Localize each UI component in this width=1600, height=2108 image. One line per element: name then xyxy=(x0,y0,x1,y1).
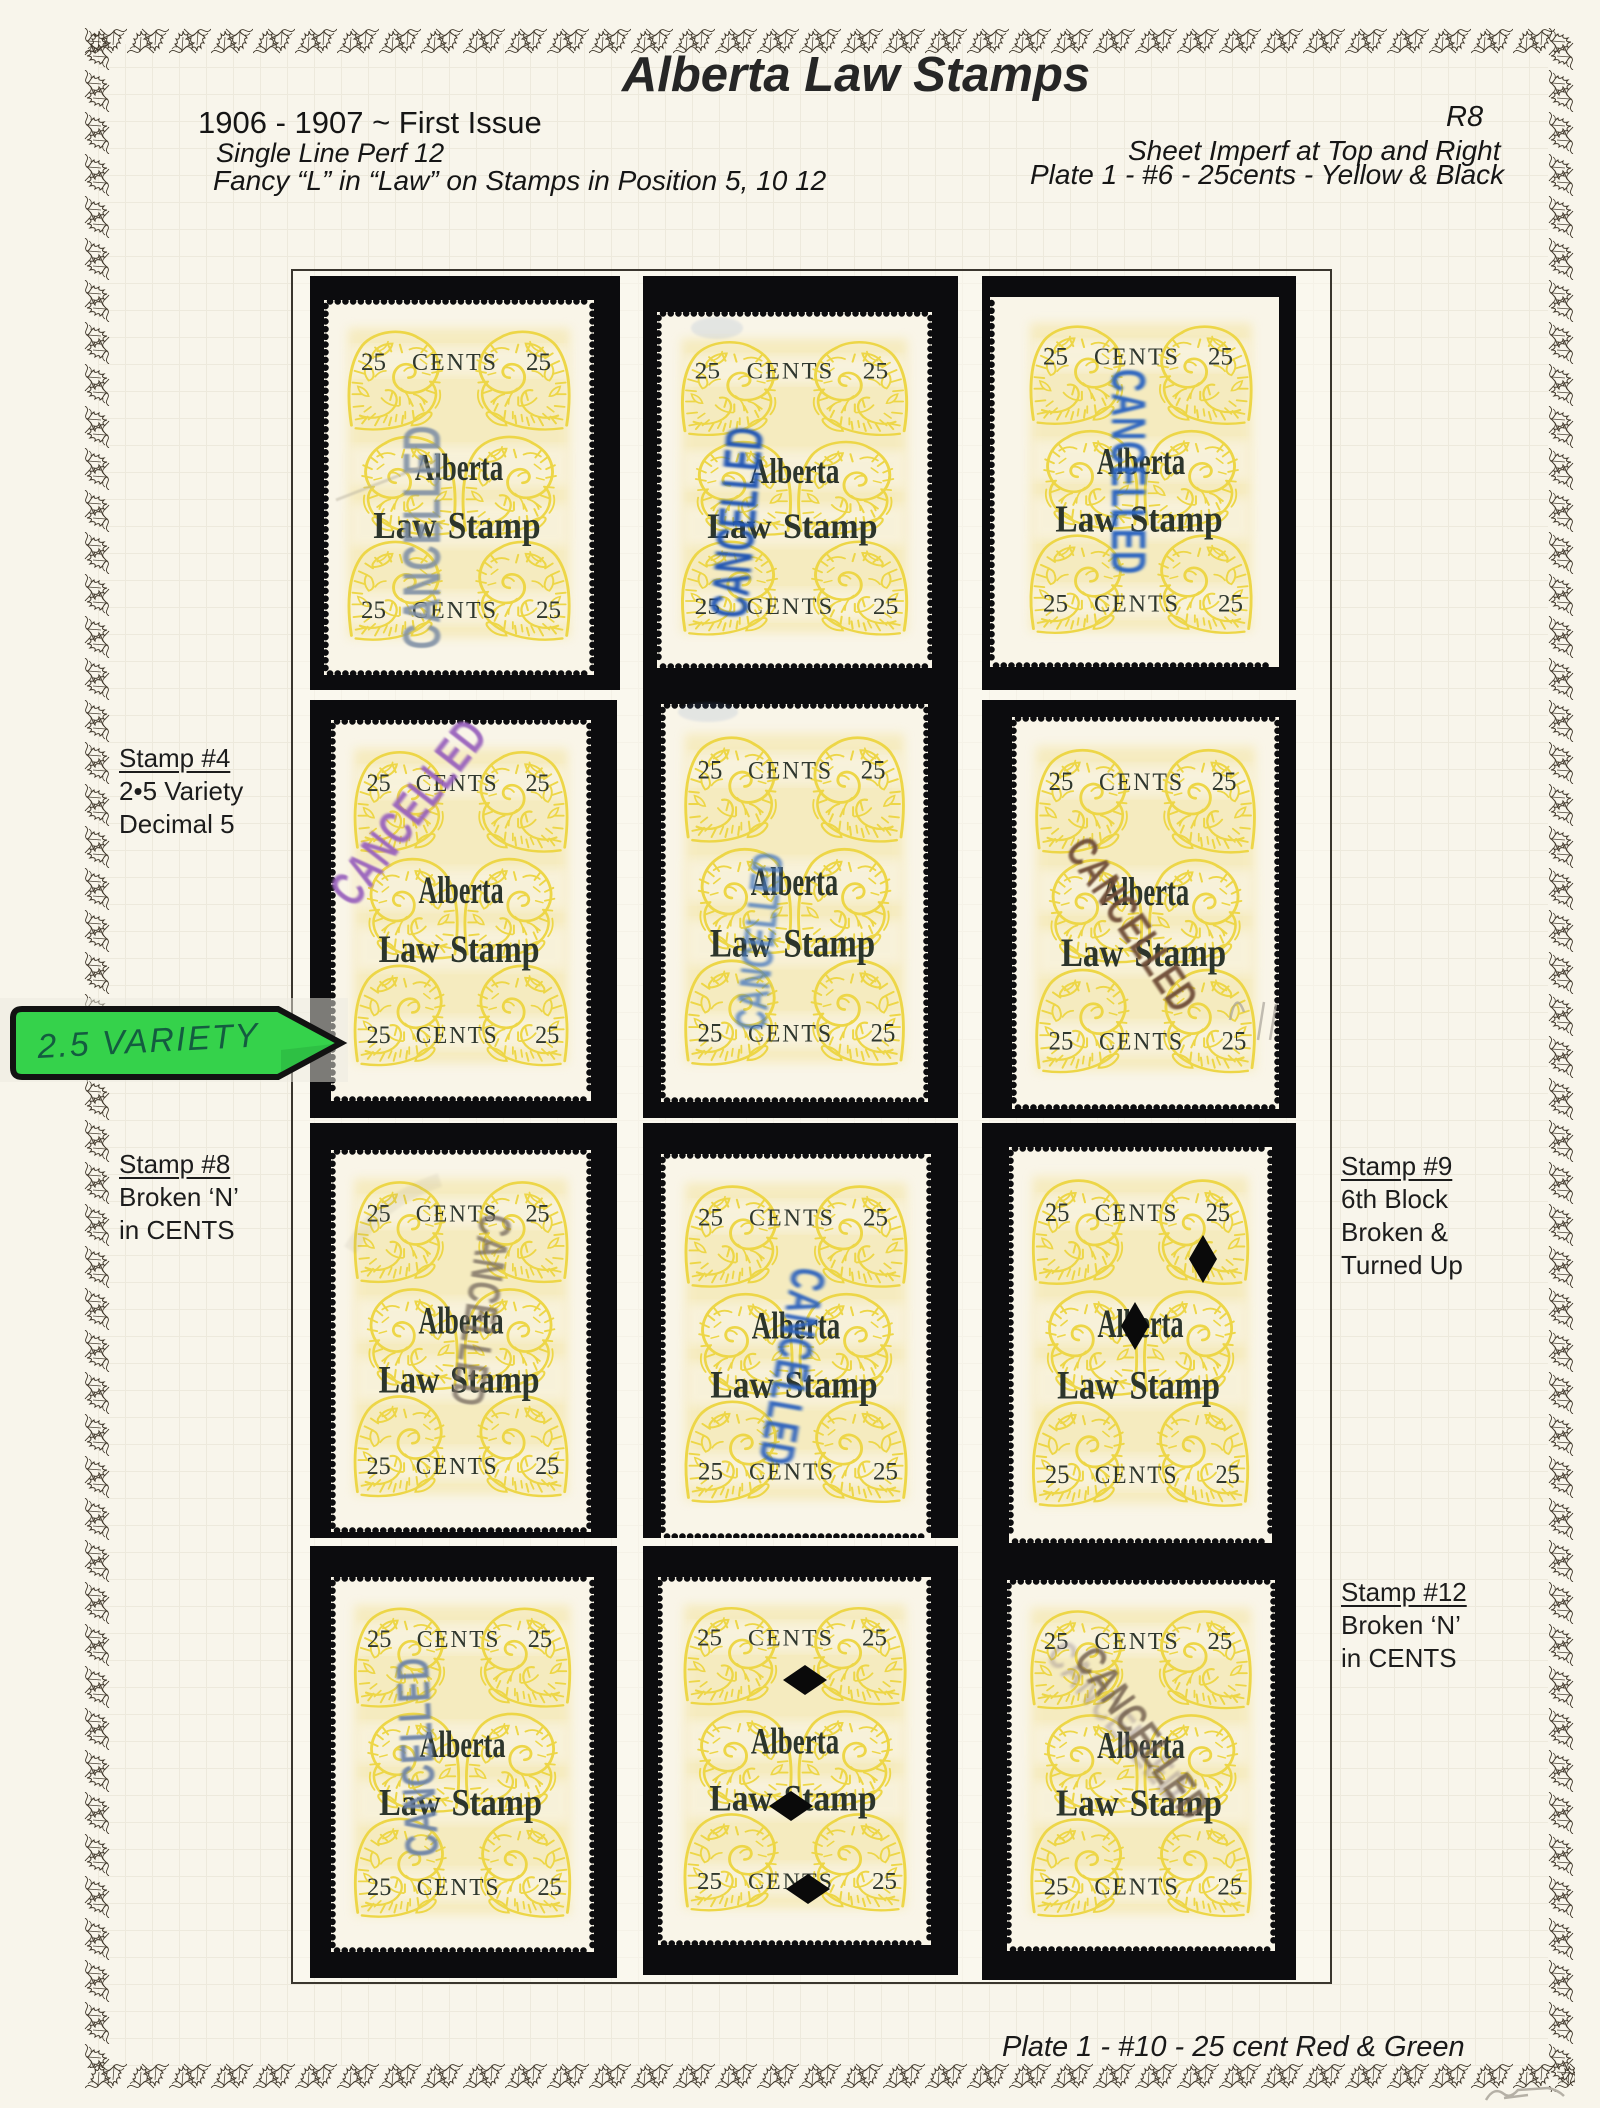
svg-text:CANCELLED: CANCELLED xyxy=(1065,1638,1219,1830)
svg-text:CANCELLED: CANCELLED xyxy=(319,707,499,916)
svg-text:CANCELLED: CANCELLED xyxy=(1101,369,1155,575)
svg-text:CANCELLED: CANCELLED xyxy=(726,850,793,1033)
svg-text:CANCELLED: CANCELLED xyxy=(1056,828,1208,1021)
svg-text:CANCELLED: CANCELLED xyxy=(701,425,776,620)
svg-text:CANCELLED: CANCELLED xyxy=(387,1656,449,1859)
svg-text:CANCELLED: CANCELLED xyxy=(748,1264,837,1471)
